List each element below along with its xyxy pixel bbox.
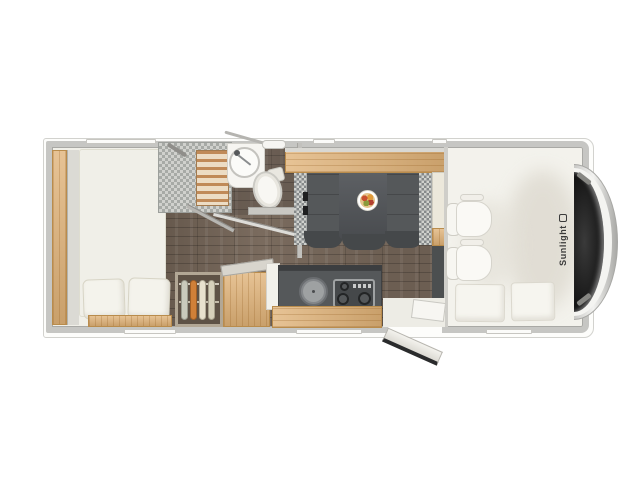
bed-foot-ledge [88,315,172,327]
hanger-3 [199,280,206,320]
bench-left-skirt [304,231,343,248]
window-kitchen-bottom [296,329,362,334]
bench-right-backrest [419,173,432,245]
brand-name: Sunlight [558,225,568,266]
window-rear-top [86,139,156,144]
hanger-1 [181,280,188,320]
cab-seat-front [456,245,492,281]
roof-vent [262,140,286,149]
bench-left-belt [303,192,308,201]
table-skirt [342,234,386,250]
entry-step [411,299,446,322]
hanger-2 [190,280,197,320]
window-cab-top [432,139,447,144]
kitchen-sink-knob [312,290,315,293]
hanger-4 [208,280,215,320]
hob-burner-left [337,293,349,305]
window-dinette-top [313,139,335,144]
cab-bed-cushion-right [511,282,556,322]
hob-controls [353,284,371,288]
hob-burner-top [340,282,349,291]
cab-bed-cushion-left [455,284,505,323]
bed-side-shelf [52,150,67,325]
bench-left-belt-2 [303,206,308,215]
kitchen-drawers [272,306,382,328]
window-cab-bottom [486,329,532,334]
window-rear-bottom [124,329,176,334]
cab-seat-rear-armrest [460,194,484,201]
brand-logo-icon [559,214,567,222]
bed-pillow-right [127,277,170,319]
brand-lettering: Sunlight [556,204,570,276]
motorhome-floorplan: Sunlight [0,0,640,480]
dinette-bench-left [307,173,341,235]
bed-pillow-left [82,278,125,319]
overhead-locker-edge [285,148,448,152]
food [360,193,375,208]
lift-top-cabinet [223,272,270,327]
bench-right-skirt [385,231,423,248]
shower-duckboard [196,150,229,206]
bed-side-ledge [67,150,79,325]
dinette-bench-right [387,173,419,235]
hob-burner-right [358,292,371,305]
cab-seat-rear [456,201,492,237]
